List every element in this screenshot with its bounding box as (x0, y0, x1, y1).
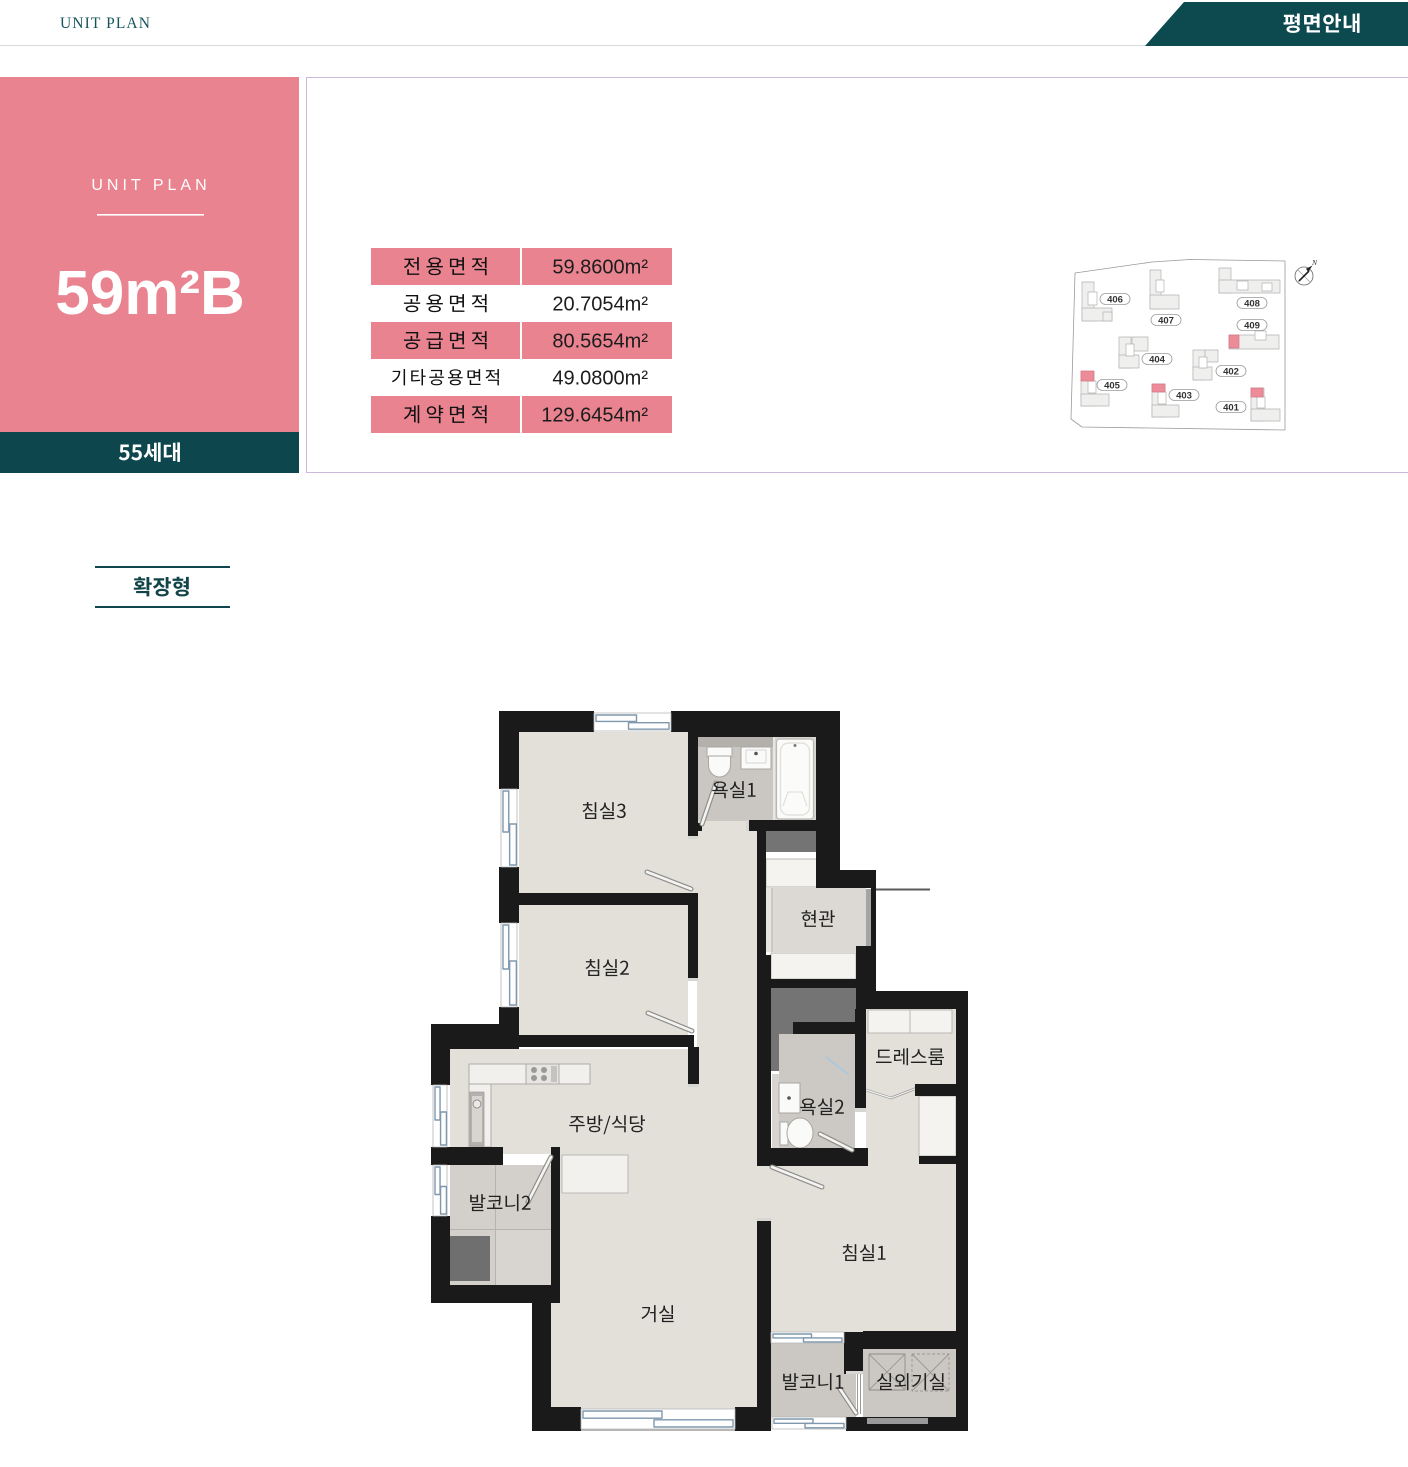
svg-text:402: 402 (1223, 366, 1239, 377)
svg-text:405: 405 (1104, 380, 1121, 391)
svg-text:49.0800m²: 49.0800m² (552, 368, 648, 390)
svg-text:UNIT PLAN: UNIT PLAN (91, 177, 210, 194)
svg-text:406: 406 (1107, 294, 1123, 305)
svg-text:401: 401 (1223, 402, 1240, 413)
svg-text:408: 408 (1244, 298, 1260, 309)
svg-text:59m²B: 59m²B (55, 259, 245, 328)
svg-text:59.8600m²: 59.8600m² (552, 257, 648, 279)
svg-text:407: 407 (1158, 315, 1174, 326)
svg-text:403: 403 (1176, 390, 1192, 401)
svg-text:409: 409 (1244, 320, 1260, 331)
svg-text:80.5654m²: 80.5654m² (552, 331, 648, 353)
svg-text:129.6454m²: 129.6454m² (541, 405, 648, 427)
svg-text:404: 404 (1149, 354, 1166, 365)
svg-text:N: N (1311, 258, 1318, 267)
svg-text:20.7054m²: 20.7054m² (552, 294, 648, 316)
svg-text:UNIT PLAN: UNIT PLAN (60, 15, 151, 32)
